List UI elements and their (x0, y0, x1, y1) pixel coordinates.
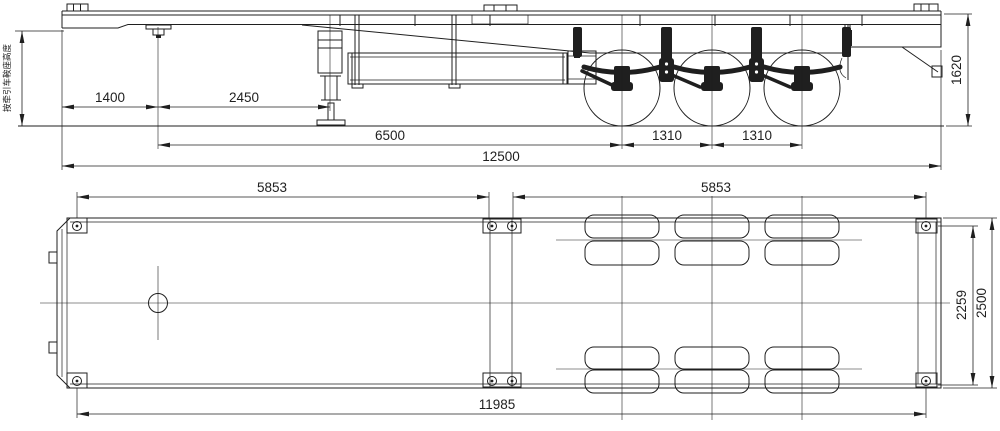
front-twist-lock (67, 4, 88, 11)
dim-lock-overall-length-label: 11985 (479, 397, 516, 412)
kingpin (146, 25, 171, 38)
side-view-dimensions: 1400 2450 6500 1310 1310 12500 1620 按牵引车… (2, 14, 968, 166)
axle-centerlines (556, 196, 862, 420)
spring-hanger-front (573, 27, 582, 57)
dim-axle-spacing-1-label: 1310 (652, 128, 682, 143)
saddle-height-note: 按牵引车鞍座高度 (2, 44, 12, 113)
plan-view-dimensions: 5853 5853 11985 2259 2500 (77, 180, 992, 414)
drawing-svg: 1400 2450 6500 1310 1310 12500 1620 按牵引车… (0, 0, 1000, 431)
dim-kingpin-to-landing-gear-label: 2450 (229, 90, 259, 105)
dim-rear-height-label: 1620 (949, 55, 964, 85)
dim-overall-length-label: 12500 (482, 149, 520, 164)
dim-axle-spacing-2-label: 1310 (742, 128, 772, 143)
equalizer-hanger-1 (661, 27, 672, 60)
main-frame (62, 11, 942, 77)
dim-front-lock-span-label: 5853 (257, 180, 287, 195)
dim-lock-transverse-label: 2259 (954, 290, 969, 320)
side-bracket-lower (49, 342, 57, 353)
dim-kingpin-to-first-axle-label: 6500 (375, 128, 405, 143)
side-view-drawing: 1400 2450 6500 1310 1310 12500 1620 按牵引车… (2, 4, 972, 170)
side-toolbox (348, 15, 596, 88)
dim-overall-width-label: 2500 (974, 288, 989, 318)
dim-rear-lock-span-label: 5853 (701, 180, 731, 195)
trailer-engineering-drawing: 1400 2450 6500 1310 1310 12500 1620 按牵引车… (0, 0, 1000, 431)
axles-and-suspension (573, 25, 852, 126)
rear-twist-lock (914, 4, 938, 11)
plan-view-drawing: 5853 5853 11985 2259 2500 (40, 180, 997, 420)
side-bracket-upper (49, 252, 57, 263)
stanchions (352, 15, 460, 88)
equalizer-hanger-2 (751, 27, 762, 60)
dim-front-overhang-label: 1400 (95, 90, 125, 105)
landing-gear (317, 31, 345, 125)
